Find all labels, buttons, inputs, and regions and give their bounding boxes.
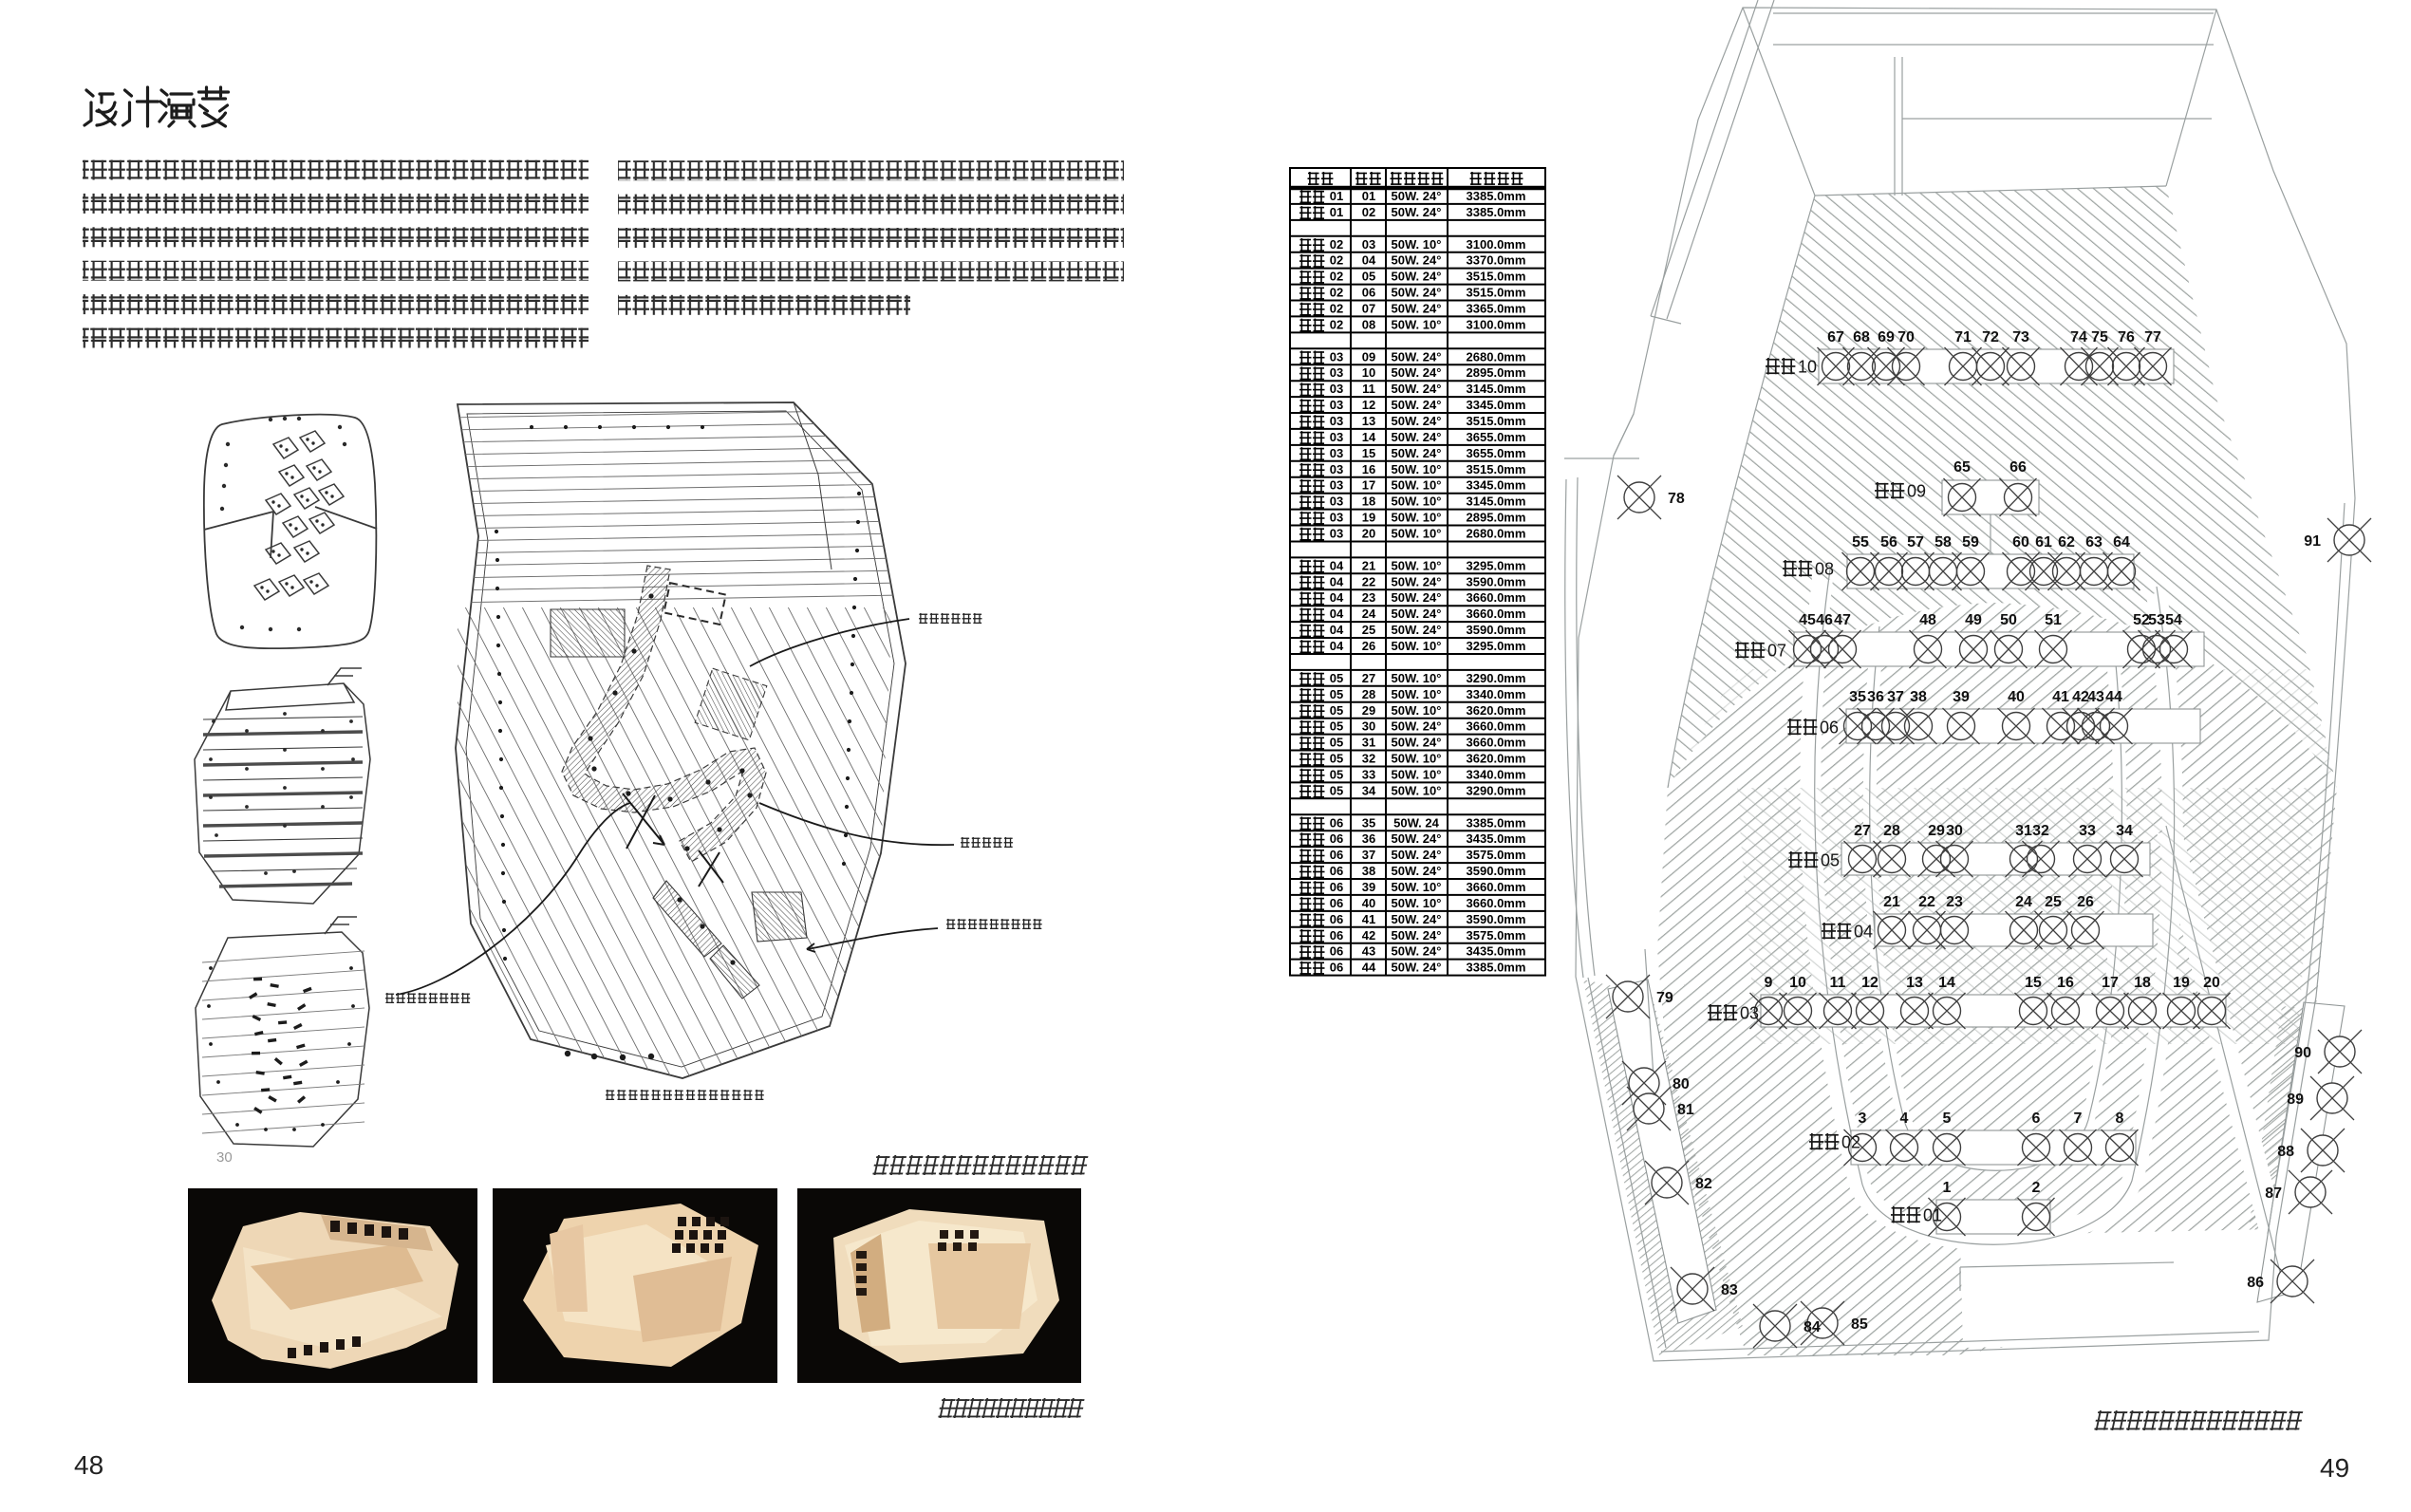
svg-text:07: 07 xyxy=(1767,642,1786,661)
svg-text:43: 43 xyxy=(2087,689,2104,705)
svg-text:06: 06 xyxy=(1330,896,1343,910)
svg-text:25: 25 xyxy=(2045,894,2062,910)
svg-text:50W. 10°: 50W. 10° xyxy=(1392,237,1442,252)
svg-text:3340.0mm: 3340.0mm xyxy=(1467,687,1526,701)
svg-text:08: 08 xyxy=(1815,560,1834,579)
svg-text:50W. 10°: 50W. 10° xyxy=(1392,495,1442,509)
svg-text:50W. 24°: 50W. 24° xyxy=(1392,719,1442,734)
svg-text:67: 67 xyxy=(1827,329,1844,345)
svg-text:03: 03 xyxy=(1330,495,1343,509)
svg-text:50W. 24°: 50W. 24° xyxy=(1392,414,1442,428)
svg-text:20: 20 xyxy=(2203,975,2220,991)
svg-text:50W. 24°: 50W. 24° xyxy=(1392,302,1442,316)
svg-text:06: 06 xyxy=(1330,961,1343,975)
svg-text:51: 51 xyxy=(2045,612,2062,628)
svg-text:30: 30 xyxy=(1362,719,1375,734)
svg-text:46: 46 xyxy=(1816,612,1833,628)
svg-text:40: 40 xyxy=(2008,689,2025,705)
svg-text:50W. 10°: 50W. 10° xyxy=(1392,671,1442,685)
svg-text:21: 21 xyxy=(1362,558,1375,572)
svg-text:8: 8 xyxy=(2116,1111,2124,1127)
svg-text:5: 5 xyxy=(1943,1111,1952,1127)
svg-text:18: 18 xyxy=(1362,495,1375,509)
svg-text:50W. 10°: 50W. 10° xyxy=(1392,317,1442,331)
svg-text:64: 64 xyxy=(2113,534,2130,551)
svg-text:05: 05 xyxy=(1821,851,1840,870)
svg-text:77: 77 xyxy=(2144,329,2161,345)
svg-text:3660.0mm: 3660.0mm xyxy=(1467,896,1526,910)
svg-text:03: 03 xyxy=(1330,398,1343,412)
svg-text:3385.0mm: 3385.0mm xyxy=(1467,815,1526,830)
svg-text:3345.0mm: 3345.0mm xyxy=(1467,478,1526,493)
svg-text:3515.0mm: 3515.0mm xyxy=(1467,286,1526,300)
svg-text:10: 10 xyxy=(1798,358,1817,377)
svg-text:23: 23 xyxy=(1946,894,1963,910)
svg-text:50W. 24°: 50W. 24° xyxy=(1392,446,1442,460)
svg-text:50W. 24°: 50W. 24° xyxy=(1392,607,1442,621)
svg-text:42: 42 xyxy=(1362,928,1375,943)
svg-text:7: 7 xyxy=(2074,1111,2083,1127)
svg-text:50W. 10°: 50W. 10° xyxy=(1392,478,1442,493)
svg-text:05: 05 xyxy=(1330,719,1343,734)
svg-text:01: 01 xyxy=(1923,1206,1942,1225)
svg-text:3385.0mm: 3385.0mm xyxy=(1467,205,1526,219)
svg-text:03: 03 xyxy=(1330,462,1343,476)
svg-text:54: 54 xyxy=(2165,612,2182,628)
svg-text:50W. 10°: 50W. 10° xyxy=(1392,752,1442,766)
svg-text:39: 39 xyxy=(1953,689,1970,705)
svg-text:02: 02 xyxy=(1330,302,1343,316)
svg-text:50W. 10°: 50W. 10° xyxy=(1392,768,1442,782)
svg-text:74: 74 xyxy=(2070,329,2087,345)
svg-text:06: 06 xyxy=(1330,880,1343,894)
svg-text:02: 02 xyxy=(1330,270,1343,284)
svg-text:04: 04 xyxy=(1330,607,1344,621)
svg-text:50W. 24°: 50W. 24° xyxy=(1392,944,1442,959)
svg-text:29: 29 xyxy=(1928,823,1945,839)
svg-text:05: 05 xyxy=(1330,687,1343,701)
svg-text:6: 6 xyxy=(2032,1111,2041,1127)
svg-text:35: 35 xyxy=(1849,689,1866,705)
svg-text:3145.0mm: 3145.0mm xyxy=(1467,495,1526,509)
svg-text:50W. 24°: 50W. 24° xyxy=(1392,928,1442,943)
svg-text:3575.0mm: 3575.0mm xyxy=(1467,848,1526,862)
svg-text:24: 24 xyxy=(1362,607,1376,621)
svg-text:3660.0mm: 3660.0mm xyxy=(1467,590,1526,605)
svg-text:35: 35 xyxy=(1362,815,1375,830)
svg-text:9: 9 xyxy=(1765,975,1773,991)
svg-text:91: 91 xyxy=(2304,533,2321,550)
svg-text:3295.0mm: 3295.0mm xyxy=(1467,639,1526,653)
svg-text:50W. 24°: 50W. 24° xyxy=(1392,574,1442,588)
svg-text:17: 17 xyxy=(2102,975,2119,991)
svg-text:49: 49 xyxy=(2320,1453,2349,1483)
svg-text:71: 71 xyxy=(1954,329,1972,345)
svg-text:2895.0mm: 2895.0mm xyxy=(1467,365,1526,380)
svg-text:01: 01 xyxy=(1362,189,1375,203)
svg-text:57: 57 xyxy=(1907,534,1924,551)
svg-text:3385.0mm: 3385.0mm xyxy=(1467,189,1526,203)
svg-text:03: 03 xyxy=(1330,511,1343,525)
svg-text:50W. 10°: 50W. 10° xyxy=(1392,558,1442,572)
svg-text:1: 1 xyxy=(1943,1180,1952,1196)
svg-text:50W. 24°: 50W. 24° xyxy=(1392,831,1442,846)
svg-text:13: 13 xyxy=(1362,414,1375,428)
svg-text:50W. 24°: 50W. 24° xyxy=(1392,382,1442,396)
svg-text:45: 45 xyxy=(1799,612,1816,628)
svg-text:3655.0mm: 3655.0mm xyxy=(1467,430,1526,444)
svg-text:40: 40 xyxy=(1362,896,1375,910)
svg-text:50W. 10°: 50W. 10° xyxy=(1392,462,1442,476)
svg-text:2680.0mm: 2680.0mm xyxy=(1467,349,1526,364)
svg-text:05: 05 xyxy=(1330,752,1343,766)
svg-text:02: 02 xyxy=(1330,237,1343,252)
svg-text:3515.0mm: 3515.0mm xyxy=(1467,414,1526,428)
svg-text:58: 58 xyxy=(1934,534,1952,551)
svg-text:03: 03 xyxy=(1330,382,1343,396)
svg-text:50W. 24°: 50W. 24° xyxy=(1392,286,1442,300)
svg-text:3365.0mm: 3365.0mm xyxy=(1467,302,1526,316)
svg-text:3295.0mm: 3295.0mm xyxy=(1467,558,1526,572)
svg-text:2895.0mm: 2895.0mm xyxy=(1467,511,1526,525)
svg-text:21: 21 xyxy=(1883,894,1900,910)
svg-text:04: 04 xyxy=(1330,574,1344,588)
svg-text:50W. 10°: 50W. 10° xyxy=(1392,639,1442,653)
svg-text:88: 88 xyxy=(2277,1144,2294,1160)
svg-text:59: 59 xyxy=(1962,534,1979,551)
svg-text:3590.0mm: 3590.0mm xyxy=(1467,864,1526,878)
svg-text:72: 72 xyxy=(1982,329,1999,345)
svg-text:02: 02 xyxy=(1330,317,1343,331)
svg-text:02: 02 xyxy=(1841,1133,1860,1152)
svg-text:2680.0mm: 2680.0mm xyxy=(1467,527,1526,541)
svg-text:05: 05 xyxy=(1330,783,1343,797)
svg-text:06: 06 xyxy=(1330,831,1343,846)
svg-text:68: 68 xyxy=(1853,329,1870,345)
svg-text:50W. 24°: 50W. 24° xyxy=(1392,590,1442,605)
svg-text:34: 34 xyxy=(2116,823,2133,839)
svg-text:3515.0mm: 3515.0mm xyxy=(1467,270,1526,284)
svg-text:20: 20 xyxy=(1362,527,1375,541)
svg-text:50W. 10°: 50W. 10° xyxy=(1392,527,1442,541)
svg-text:50W. 24°: 50W. 24° xyxy=(1392,961,1442,975)
svg-text:38: 38 xyxy=(1910,689,1927,705)
svg-text:3620.0mm: 3620.0mm xyxy=(1467,752,1526,766)
svg-text:36: 36 xyxy=(1362,831,1375,846)
svg-text:26: 26 xyxy=(2077,894,2094,910)
svg-text:90: 90 xyxy=(2294,1045,2311,1061)
svg-text:39: 39 xyxy=(1362,880,1375,894)
svg-text:3145.0mm: 3145.0mm xyxy=(1467,382,1526,396)
svg-text:14: 14 xyxy=(1362,430,1376,444)
svg-text:38: 38 xyxy=(1362,864,1375,878)
svg-text:3290.0mm: 3290.0mm xyxy=(1467,671,1526,685)
svg-text:06: 06 xyxy=(1330,944,1343,959)
svg-text:36: 36 xyxy=(1867,689,1884,705)
svg-text:41: 41 xyxy=(2052,689,2069,705)
svg-text:04: 04 xyxy=(1330,558,1344,572)
svg-text:80: 80 xyxy=(1673,1076,1690,1092)
svg-text:22: 22 xyxy=(1362,574,1375,588)
svg-text:37: 37 xyxy=(1362,848,1375,862)
svg-text:50W. 24°: 50W. 24° xyxy=(1392,912,1442,926)
svg-text:11: 11 xyxy=(1830,975,1846,991)
svg-text:49: 49 xyxy=(1965,612,1982,628)
svg-text:3590.0mm: 3590.0mm xyxy=(1467,912,1526,926)
svg-text:56: 56 xyxy=(1880,534,1897,551)
svg-text:4: 4 xyxy=(1900,1111,1909,1127)
svg-text:01: 01 xyxy=(1330,189,1343,203)
svg-text:53: 53 xyxy=(2148,612,2165,628)
svg-text:3660.0mm: 3660.0mm xyxy=(1467,719,1526,734)
svg-text:50W. 24°: 50W. 24° xyxy=(1392,398,1442,412)
svg-text:43: 43 xyxy=(1362,944,1375,959)
svg-text:3385.0mm: 3385.0mm xyxy=(1467,961,1526,975)
svg-text:18: 18 xyxy=(2134,975,2151,991)
svg-text:3590.0mm: 3590.0mm xyxy=(1467,623,1526,637)
svg-text:06: 06 xyxy=(1820,719,1839,737)
svg-text:14: 14 xyxy=(1938,975,1955,991)
svg-text:50W. 10°: 50W. 10° xyxy=(1392,896,1442,910)
svg-text:50W. 24°: 50W. 24° xyxy=(1392,848,1442,862)
svg-text:29: 29 xyxy=(1362,703,1375,718)
svg-text:15: 15 xyxy=(2025,975,2042,991)
svg-text:27: 27 xyxy=(1362,671,1375,685)
svg-text:03: 03 xyxy=(1330,478,1343,493)
svg-text:3660.0mm: 3660.0mm xyxy=(1467,736,1526,750)
svg-text:48: 48 xyxy=(74,1450,103,1480)
svg-text:50W. 10°: 50W. 10° xyxy=(1392,703,1442,718)
svg-text:37: 37 xyxy=(1887,689,1904,705)
svg-text:33: 33 xyxy=(1362,768,1375,782)
svg-text:60: 60 xyxy=(2012,534,2029,551)
svg-text:03: 03 xyxy=(1330,349,1343,364)
svg-text:87: 87 xyxy=(2265,1185,2282,1202)
svg-text:55: 55 xyxy=(1852,534,1869,551)
svg-text:48: 48 xyxy=(1919,612,1936,628)
svg-text:06: 06 xyxy=(1330,815,1343,830)
svg-text:03: 03 xyxy=(1330,430,1343,444)
svg-text:23: 23 xyxy=(1362,590,1375,605)
svg-text:50W. 24°: 50W. 24° xyxy=(1392,864,1442,878)
svg-text:12: 12 xyxy=(1861,975,1878,991)
svg-text:50W. 24°: 50W. 24° xyxy=(1392,623,1442,637)
svg-text:50W. 24°: 50W. 24° xyxy=(1392,205,1442,219)
svg-text:50W. 10°: 50W. 10° xyxy=(1392,880,1442,894)
svg-text:33: 33 xyxy=(2079,823,2096,839)
svg-text:31: 31 xyxy=(1362,736,1375,750)
svg-text:84: 84 xyxy=(1804,1319,1821,1335)
svg-text:15: 15 xyxy=(1362,446,1375,460)
svg-text:3345.0mm: 3345.0mm xyxy=(1467,398,1526,412)
svg-text:31: 31 xyxy=(2015,823,2032,839)
svg-text:28: 28 xyxy=(1362,687,1375,701)
svg-text:06: 06 xyxy=(1362,286,1375,300)
svg-text:3100.0mm: 3100.0mm xyxy=(1467,317,1526,331)
svg-text:78: 78 xyxy=(1668,491,1685,507)
svg-text:25: 25 xyxy=(1362,623,1375,637)
svg-text:61: 61 xyxy=(2035,534,2052,551)
svg-text:32: 32 xyxy=(2032,823,2049,839)
svg-text:08: 08 xyxy=(1362,317,1375,331)
svg-text:50W. 24°: 50W. 24° xyxy=(1392,349,1442,364)
svg-text:63: 63 xyxy=(2085,534,2103,551)
svg-text:05: 05 xyxy=(1330,703,1343,718)
svg-text:3340.0mm: 3340.0mm xyxy=(1467,768,1526,782)
svg-text:07: 07 xyxy=(1362,302,1375,316)
svg-text:3435.0mm: 3435.0mm xyxy=(1467,831,1526,846)
svg-text:26: 26 xyxy=(1362,639,1375,653)
svg-text:73: 73 xyxy=(2012,329,2029,345)
svg-text:10: 10 xyxy=(1362,365,1375,380)
svg-text:3575.0mm: 3575.0mm xyxy=(1467,928,1526,943)
svg-text:03: 03 xyxy=(1330,365,1343,380)
svg-text:17: 17 xyxy=(1362,478,1375,493)
svg-text:50W. 24°: 50W. 24° xyxy=(1392,365,1442,380)
svg-text:28: 28 xyxy=(1883,823,1900,839)
svg-text:2: 2 xyxy=(2032,1180,2041,1196)
svg-text:30: 30 xyxy=(216,1149,233,1166)
svg-text:50W. 24: 50W. 24 xyxy=(1393,815,1439,830)
svg-text:3620.0mm: 3620.0mm xyxy=(1467,703,1526,718)
svg-text:41: 41 xyxy=(1362,912,1375,926)
svg-text:50: 50 xyxy=(2000,612,2017,628)
svg-text:83: 83 xyxy=(1721,1282,1738,1298)
svg-text:89: 89 xyxy=(2287,1092,2304,1108)
svg-text:09: 09 xyxy=(1907,482,1926,501)
svg-text:50W. 24°: 50W. 24° xyxy=(1392,253,1442,268)
svg-text:09: 09 xyxy=(1362,349,1375,364)
svg-text:82: 82 xyxy=(1695,1176,1712,1192)
svg-text:04: 04 xyxy=(1854,923,1873,942)
svg-text:22: 22 xyxy=(1918,894,1935,910)
svg-text:47: 47 xyxy=(1834,612,1851,628)
svg-text:02: 02 xyxy=(1362,205,1375,219)
svg-text:16: 16 xyxy=(1362,462,1375,476)
svg-text:65: 65 xyxy=(1953,459,1971,476)
svg-text:04: 04 xyxy=(1330,590,1344,605)
svg-text:86: 86 xyxy=(2247,1275,2264,1291)
svg-text:03: 03 xyxy=(1330,414,1343,428)
svg-text:3370.0mm: 3370.0mm xyxy=(1467,253,1526,268)
svg-text:12: 12 xyxy=(1362,398,1375,412)
svg-text:06: 06 xyxy=(1330,928,1343,943)
svg-text:05: 05 xyxy=(1330,671,1343,685)
svg-text:50W. 10°: 50W. 10° xyxy=(1392,783,1442,797)
svg-text:06: 06 xyxy=(1330,912,1343,926)
svg-text:11: 11 xyxy=(1362,382,1375,396)
svg-text:3100.0mm: 3100.0mm xyxy=(1467,237,1526,252)
svg-text:50W. 24°: 50W. 24° xyxy=(1392,430,1442,444)
svg-text:03: 03 xyxy=(1330,446,1343,460)
svg-text:50W. 24°: 50W. 24° xyxy=(1392,189,1442,203)
svg-text:44: 44 xyxy=(2105,689,2122,705)
svg-text:19: 19 xyxy=(1362,511,1375,525)
svg-text:02: 02 xyxy=(1330,253,1343,268)
svg-text:50W. 24°: 50W. 24° xyxy=(1392,270,1442,284)
svg-text:3: 3 xyxy=(1859,1111,1867,1127)
svg-text:05: 05 xyxy=(1330,736,1343,750)
svg-text:50W. 10°: 50W. 10° xyxy=(1392,511,1442,525)
svg-text:44: 44 xyxy=(1362,961,1376,975)
svg-text:10: 10 xyxy=(1789,975,1806,991)
svg-text:3660.0mm: 3660.0mm xyxy=(1467,607,1526,621)
svg-text:01: 01 xyxy=(1330,205,1343,219)
svg-text:27: 27 xyxy=(1854,823,1871,839)
svg-text:81: 81 xyxy=(1677,1102,1694,1118)
svg-text:34: 34 xyxy=(1362,783,1376,797)
svg-text:3655.0mm: 3655.0mm xyxy=(1467,446,1526,460)
svg-text:75: 75 xyxy=(2091,329,2108,345)
svg-text:03: 03 xyxy=(1740,1004,1759,1023)
svg-text:3590.0mm: 3590.0mm xyxy=(1467,574,1526,588)
svg-text:13: 13 xyxy=(1906,975,1923,991)
svg-text:04: 04 xyxy=(1362,253,1376,268)
svg-text:02: 02 xyxy=(1330,286,1343,300)
svg-text:70: 70 xyxy=(1897,329,1915,345)
svg-text:04: 04 xyxy=(1330,623,1344,637)
svg-text:50W. 24°: 50W. 24° xyxy=(1392,736,1442,750)
svg-text:04: 04 xyxy=(1330,639,1344,653)
svg-text:05: 05 xyxy=(1330,768,1343,782)
svg-text:03: 03 xyxy=(1362,237,1375,252)
svg-text:32: 32 xyxy=(1362,752,1375,766)
svg-text:16: 16 xyxy=(2057,975,2074,991)
svg-text:3290.0mm: 3290.0mm xyxy=(1467,783,1526,797)
svg-text:62: 62 xyxy=(2058,534,2075,551)
svg-text:50W. 10°: 50W. 10° xyxy=(1392,687,1442,701)
svg-text:79: 79 xyxy=(1656,990,1673,1006)
svg-text:76: 76 xyxy=(2118,329,2135,345)
svg-text:85: 85 xyxy=(1851,1316,1868,1333)
svg-text:03: 03 xyxy=(1330,527,1343,541)
svg-text:3435.0mm: 3435.0mm xyxy=(1467,944,1526,959)
svg-text:24: 24 xyxy=(2015,894,2032,910)
svg-text:66: 66 xyxy=(2009,459,2027,476)
svg-text:30: 30 xyxy=(1946,823,1963,839)
svg-text:3660.0mm: 3660.0mm xyxy=(1467,880,1526,894)
svg-text:3515.0mm: 3515.0mm xyxy=(1467,462,1526,476)
svg-text:19: 19 xyxy=(2173,975,2190,991)
svg-text:06: 06 xyxy=(1330,864,1343,878)
svg-text:06: 06 xyxy=(1330,848,1343,862)
svg-text:69: 69 xyxy=(1878,329,1895,345)
svg-text:05: 05 xyxy=(1362,270,1375,284)
